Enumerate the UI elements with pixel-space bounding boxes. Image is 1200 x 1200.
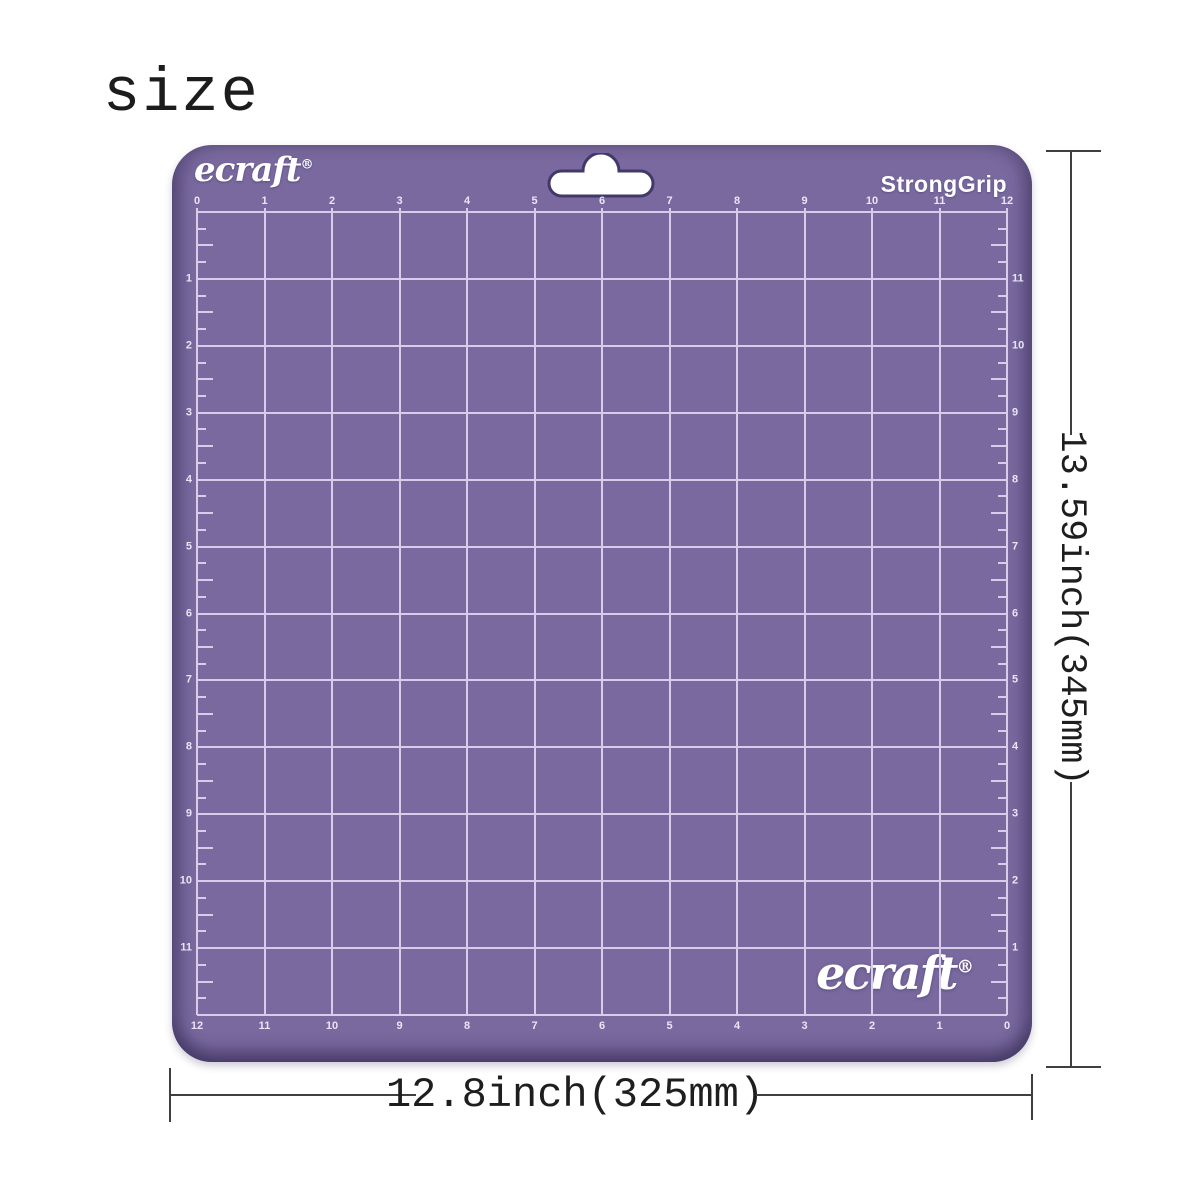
tick-mark-right — [998, 863, 1007, 865]
tick-mark-right — [991, 445, 1007, 447]
ruler-number-left: 11 — [180, 943, 192, 954]
tick-mark-right — [998, 629, 1007, 631]
tick-mark-left — [197, 897, 206, 899]
ruler-number-left: 9 — [186, 809, 192, 820]
ruler-number-right: 10 — [1012, 340, 1024, 351]
tick-mark-left — [197, 562, 206, 564]
tick-mark-right — [991, 780, 1007, 782]
ruler-number-right: 8 — [1012, 474, 1018, 485]
grid-line-horizontal — [197, 880, 1007, 882]
ruler-number-top: 9 — [801, 196, 807, 207]
tick-mark-right — [998, 328, 1007, 330]
ruler-number-left: 5 — [186, 541, 192, 552]
height-dimension-line-bottom — [1070, 782, 1072, 1068]
grid-line-horizontal — [197, 278, 1007, 280]
grid-line-vertical — [669, 208, 671, 1015]
tick-mark-left — [197, 512, 213, 514]
tick-mark-left — [197, 914, 213, 916]
tick-mark-right — [998, 897, 1007, 899]
height-dimension-line-top — [1070, 152, 1072, 435]
ruler-number-bottom: 12 — [191, 1021, 203, 1032]
ruler-number-right: 5 — [1012, 675, 1018, 686]
ruler-number-right: 9 — [1012, 407, 1018, 418]
tick-mark-left — [197, 311, 213, 313]
ruler-number-bottom: 7 — [531, 1021, 537, 1032]
tick-mark-left — [197, 295, 206, 297]
tick-mark-left — [197, 780, 213, 782]
registered-mark-icon: ® — [957, 958, 974, 978]
tick-mark-left — [197, 797, 206, 799]
tick-mark-right — [998, 730, 1007, 732]
tick-mark-left — [197, 529, 206, 531]
tick-mark-left — [197, 713, 213, 715]
tick-mark-left — [197, 395, 206, 397]
tick-mark-right — [998, 663, 1007, 665]
tick-mark-left — [197, 495, 206, 497]
ruler-number-right: 6 — [1012, 608, 1018, 619]
tick-mark-left — [197, 997, 206, 999]
ruler-number-bottom: 0 — [1004, 1021, 1010, 1032]
width-dimension-cap-right — [1031, 1074, 1033, 1120]
grid-line-horizontal — [197, 412, 1007, 414]
ruler-number-right: 7 — [1012, 541, 1018, 552]
tick-mark-left — [197, 261, 206, 263]
ruler-number-left: 7 — [186, 675, 192, 686]
tick-mark-right — [998, 930, 1007, 932]
tick-mark-left — [197, 930, 206, 932]
grid-line-horizontal — [197, 746, 1007, 748]
height-dimension-cap-top — [1046, 150, 1101, 152]
ruler-number-left: 8 — [186, 742, 192, 753]
ruler-number-bottom: 9 — [396, 1021, 402, 1032]
ruler-number-bottom: 8 — [464, 1021, 470, 1032]
tick-mark-right — [998, 562, 1007, 564]
grid-line-vertical — [871, 208, 873, 1015]
tick-mark-right — [998, 763, 1007, 765]
grid-line-vertical — [939, 208, 941, 1015]
grid-line-vertical — [601, 208, 603, 1015]
tick-mark-right — [998, 964, 1007, 966]
tick-mark-right — [991, 244, 1007, 246]
tick-mark-left — [197, 964, 206, 966]
ruler-number-top: 4 — [464, 196, 470, 207]
tick-mark-right — [998, 462, 1007, 464]
tick-mark-right — [998, 696, 1007, 698]
tick-mark-left — [197, 428, 206, 430]
tick-mark-left — [197, 863, 206, 865]
grid-line-horizontal — [197, 479, 1007, 481]
ruler-number-bottom: 10 — [326, 1021, 338, 1032]
grid-line-vertical — [331, 208, 333, 1015]
grid-line-horizontal — [197, 813, 1007, 815]
ruler-number-bottom: 11 — [259, 1021, 271, 1032]
hang-hole-shape — [549, 153, 653, 196]
ruler-number-right: 3 — [1012, 809, 1018, 820]
tick-mark-left — [197, 763, 206, 765]
ruler-number-left: 4 — [186, 474, 192, 485]
grid-line-vertical — [466, 208, 468, 1015]
registered-mark-icon: ® — [301, 158, 314, 173]
hang-hole — [547, 153, 655, 199]
tick-mark-right — [991, 914, 1007, 916]
size-title: size — [103, 58, 260, 129]
tick-mark-right — [991, 713, 1007, 715]
grid-line-vertical — [534, 208, 536, 1015]
grid-line-horizontal — [197, 1014, 1007, 1016]
tick-mark-right — [998, 261, 1007, 263]
width-dimension-line-left — [171, 1094, 416, 1096]
tick-mark-right — [998, 362, 1007, 364]
tick-mark-right — [998, 830, 1007, 832]
ruler-number-top: 7 — [666, 196, 672, 207]
height-dimension-cap-bottom — [1046, 1066, 1101, 1068]
tick-mark-right — [998, 228, 1007, 230]
ruler-number-bottom: 3 — [801, 1021, 807, 1032]
tick-mark-right — [991, 981, 1007, 983]
cutting-mat: ecraft® StrongGrip ecraft® 0123456789101… — [172, 145, 1032, 1062]
brand-logo-text: ecraft — [194, 150, 301, 190]
ruler-number-right: 2 — [1012, 876, 1018, 887]
brand-logo-top-left: ecraft® — [194, 150, 314, 190]
tick-mark-right — [998, 295, 1007, 297]
tick-mark-right — [991, 311, 1007, 313]
ruler-number-top: 2 — [329, 196, 335, 207]
ruler-number-top: 10 — [866, 196, 878, 207]
tick-mark-left — [197, 730, 206, 732]
tick-mark-right — [998, 529, 1007, 531]
tick-mark-left — [197, 244, 213, 246]
grid-line-vertical — [736, 208, 738, 1015]
tick-mark-left — [197, 362, 206, 364]
ruler-number-left: 10 — [180, 876, 192, 887]
width-dimension-line-right — [756, 1094, 1032, 1096]
grid-line-horizontal — [197, 679, 1007, 681]
tick-mark-right — [998, 997, 1007, 999]
ruler-number-top: 11 — [934, 196, 946, 207]
ruler-number-bottom: 5 — [666, 1021, 672, 1032]
tick-mark-left — [197, 847, 213, 849]
page-root: { "title": "size", "mat": { "brand_logo_… — [0, 0, 1200, 1200]
ruler-number-bottom: 4 — [734, 1021, 740, 1032]
tick-mark-right — [998, 395, 1007, 397]
ruler-number-top: 0 — [194, 196, 200, 207]
tick-mark-left — [197, 596, 206, 598]
tick-mark-right — [991, 579, 1007, 581]
ruler-number-bottom: 2 — [869, 1021, 875, 1032]
tick-mark-left — [197, 228, 206, 230]
ruler-number-right: 4 — [1012, 742, 1018, 753]
tick-mark-right — [998, 428, 1007, 430]
grid-line-horizontal — [197, 211, 1007, 213]
tick-mark-right — [991, 378, 1007, 380]
ruler-number-bottom: 1 — [936, 1021, 942, 1032]
ruler-number-top: 8 — [734, 196, 740, 207]
tick-mark-left — [197, 830, 206, 832]
grid-line-vertical — [804, 208, 806, 1015]
tick-mark-right — [991, 512, 1007, 514]
width-dimension-label: 12.8inch(325mm) — [386, 1071, 764, 1119]
height-dimension-label: 13.59inch(345mm) — [1050, 430, 1092, 785]
tick-mark-right — [998, 596, 1007, 598]
ruler-number-bottom: 6 — [599, 1021, 605, 1032]
ruler-number-left: 6 — [186, 608, 192, 619]
grid-line-horizontal — [197, 546, 1007, 548]
tick-mark-left — [197, 328, 206, 330]
brand-logo-bottom-right: ecraft® — [816, 946, 974, 1000]
brand-logo-text: ecraft — [816, 946, 956, 1000]
grid-line-horizontal — [197, 947, 1007, 949]
tick-mark-right — [998, 797, 1007, 799]
tick-mark-left — [197, 629, 206, 631]
grid-line-vertical — [264, 208, 266, 1015]
tick-mark-right — [991, 646, 1007, 648]
tick-mark-right — [998, 495, 1007, 497]
tick-mark-left — [197, 646, 213, 648]
grid-line-horizontal — [197, 345, 1007, 347]
tick-mark-left — [197, 579, 213, 581]
tick-mark-left — [197, 462, 206, 464]
ruler-number-top: 5 — [531, 196, 537, 207]
ruler-number-right: 1 — [1012, 943, 1018, 954]
grid-line-vertical — [399, 208, 401, 1015]
ruler-number-left: 2 — [186, 340, 192, 351]
grip-type-label: StrongGrip — [881, 171, 1007, 198]
tick-mark-right — [991, 847, 1007, 849]
ruler-number-top: 1 — [261, 196, 267, 207]
ruler-number-top: 3 — [396, 196, 402, 207]
ruler-number-top: 6 — [599, 196, 605, 207]
tick-mark-left — [197, 663, 206, 665]
tick-mark-left — [197, 981, 213, 983]
tick-mark-left — [197, 378, 213, 380]
grid-line-horizontal — [197, 613, 1007, 615]
ruler-number-right: 11 — [1012, 273, 1024, 284]
tick-mark-left — [197, 445, 213, 447]
ruler-number-left: 1 — [186, 273, 192, 284]
ruler-number-left: 3 — [186, 407, 192, 418]
ruler-number-top: 12 — [1001, 196, 1013, 207]
tick-mark-left — [197, 696, 206, 698]
